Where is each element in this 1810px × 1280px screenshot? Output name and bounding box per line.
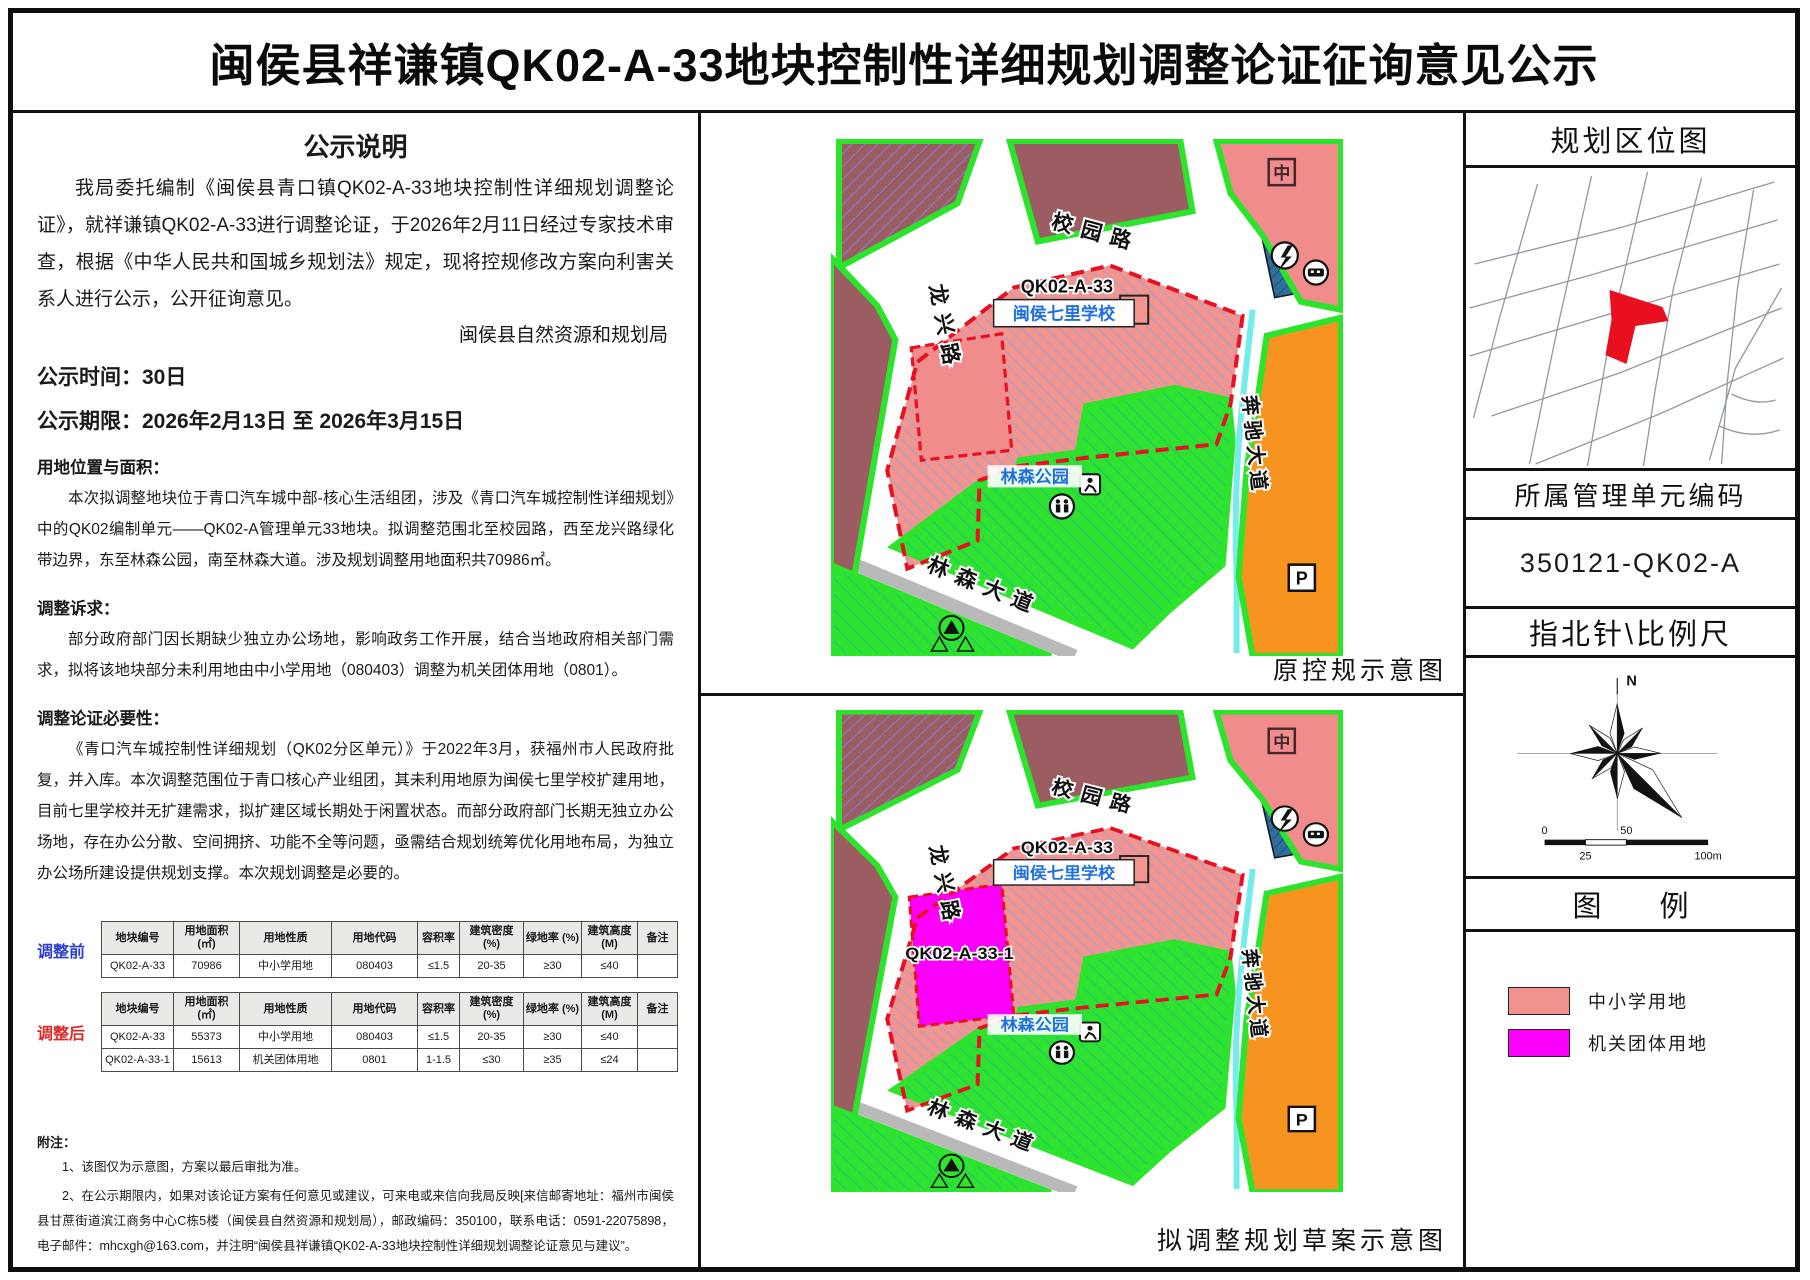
activity-icon [1080,474,1100,494]
notice-page: 闽侯县祥谦镇QK02-A-33地块控制性详细规划调整论证征询意见公示 公示说明 … [0,0,1810,1280]
col-header: 建筑密度 (%) [460,922,524,955]
col-header: 建筑密度 (%) [460,993,524,1026]
parking-icon-label: P [1296,1110,1308,1129]
toilet-icon [1050,494,1074,518]
section-body: 《青口汽车城控制性详细规划（QK02分区单元）》于2022年3月，获福州市人民政… [37,734,674,889]
parking-icon-label: P [1296,569,1308,589]
table-before-row: 调整前 地块编号 用地面积 (㎡) 用地性质 用地代码 容积率 建筑密度 (%)… [37,921,674,978]
park-name-label: 林森公园 [1001,1015,1069,1034]
cell: 中小学用地 [240,955,332,978]
footnotes: 附注： 1、该图仅为示意图，方案以最后审批为准。 2、在公示期限内，如果对该论证… [37,1132,674,1267]
scale-tick-25: 25 [1579,851,1591,863]
col-header: 地块编号 [102,922,174,955]
cell: 15613 [174,1049,240,1072]
cell: ≥30 [524,955,582,978]
col-header: 建筑高度 (M) [582,922,638,955]
legend-item-school: 中小学用地 [1508,987,1795,1015]
cell: ≤40 [582,1026,638,1049]
footnote-3: 3、如要求听证，应在公示期限内书面向我局提出申请。 [37,1263,674,1267]
table-header-row: 地块编号 用地面积 (㎡) 用地性质 用地代码 容积率 建筑密度 (%) 绿地率… [102,922,678,955]
cell: ≤1.5 [418,955,460,978]
col-header: 绿地率 (%) [524,922,582,955]
cell: 机关团体用地 [240,1049,332,1072]
activity-icon [1080,1023,1100,1042]
table-before: 地块编号 用地面积 (㎡) 用地性质 用地代码 容积率 建筑密度 (%) 绿地率… [101,921,678,978]
government-land-swatch [1508,1029,1570,1057]
col-header: 地块编号 [102,993,174,1026]
col-header: 用地性质 [240,993,332,1026]
compass-cell: N [1466,658,1795,879]
cell: ≤1.5 [418,1026,460,1049]
col-header: 用地性质 [240,922,332,955]
page-title: 闽侯县祥谦镇QK02-A-33地块控制性详细规划调整论证征询意见公示 [209,29,1598,94]
col-header: 用地代码 [332,993,418,1026]
table-after: 地块编号 用地面积 (㎡) 用地性质 用地代码 容积率 建筑密度 (%) 绿地率… [101,992,678,1072]
cell: 080403 [332,955,418,978]
section-adjust-demand: 调整诉求： 部分政府部门因长期缺少独立办公场地，影响政务工作开展，结合当地政府相… [37,595,674,686]
map-panels: 中 P [701,113,1466,1267]
col-header: 用地代码 [332,922,418,955]
cell: 55373 [174,1026,240,1049]
cell [638,1049,678,1072]
scale-bar: 0 50 25 100m [1541,825,1721,862]
cell: 70986 [174,955,240,978]
col-header: 建筑高度 (M) [582,993,638,1026]
table-row: QK02-A-33 55373 中小学用地 080403 ≤1.5 20-35 … [102,1026,678,1049]
section-necessity: 调整论证必要性： 《青口汽车城控制性详细规划（QK02分区单元）》于2022年3… [37,705,674,889]
legend-label: 机关团体用地 [1588,1030,1708,1056]
notice-paragraph: 我局委托编制《闽侯县青口镇QK02-A-33地块控制性详细规划调整论证》，就祥谦… [37,170,674,318]
cell: 20-35 [460,955,524,978]
bus-icon [1308,831,1324,838]
proposed-plan-map: 中 P [831,710,1343,1192]
section-title: 调整论证必要性： [37,705,674,729]
publicity-period: 公示期限：2026年2月13日 至 2026年3月15日 [37,405,674,435]
scale-tick-100: 100m [1694,851,1721,863]
legend-title: 图 例 [1466,879,1795,932]
table-after-row: 调整后 地块编号 用地面积 (㎡) 用地性质 用地代码 容积率 建筑密度 (%)… [37,992,674,1072]
original-plan-panel: 中 P [701,113,1463,696]
cell: ≤24 [582,1049,638,1072]
legend-label: 中小学用地 [1588,988,1688,1014]
col-header: 用地面积 (㎡) [174,922,240,955]
issuing-authority: 闽侯县自然资源和规划局 [37,320,674,347]
table-after-label: 调整后 [37,1020,101,1044]
legend-item-government: 机关团体用地 [1508,1029,1795,1057]
location-map [1466,168,1795,468]
notice-text-panel: 公示说明 我局委托编制《闽侯县青口镇QK02-A-33地块控制性详细规划调整论证… [13,113,701,1267]
footnote-1: 1、该图仅为示意图，方案以最后审批为准。 [37,1155,674,1180]
cell: QK02-A-33 [102,955,174,978]
parcel-code-label: QK02-A-33 [1021,277,1113,297]
cell: QK02-A-33 [102,1026,174,1049]
bus-icon [1308,269,1324,277]
section-title: 调整诉求： [37,595,674,619]
toilet-icon [1050,1041,1074,1063]
cell: 中小学用地 [240,1026,332,1049]
table-before-label: 调整前 [37,938,101,962]
cell: ≤30 [460,1049,524,1072]
table-row: QK02-A-33 70986 中小学用地 080403 ≤1.5 20-35 … [102,955,678,978]
sidebar: 规划区位图 [1466,113,1795,1267]
page-frame: 闽侯县祥谦镇QK02-A-33地块控制性详细规划调整论证征询意见公示 公示说明 … [8,8,1800,1272]
cell: 080403 [332,1026,418,1049]
col-header: 备注 [638,993,678,1026]
cell: ≤40 [582,955,638,978]
location-map-title: 规划区位图 [1466,113,1795,168]
compass-scale-title: 指北针\比例尺 [1466,609,1795,658]
school-land-swatch [1508,987,1570,1015]
middle-school-icon-label: 中 [1273,163,1290,183]
cell: 1-1.5 [418,1049,460,1072]
original-plan-caption: 原控规示意图 [1273,651,1447,687]
cell [638,1026,678,1049]
park-name-label: 林森公园 [1001,466,1069,486]
cell: 20-35 [460,1026,524,1049]
main-area: 公示说明 我局委托编制《闽侯县青口镇QK02-A-33地块控制性详细规划调整论证… [13,113,1795,1267]
proposed-plan-panel: 中 P [701,696,1463,1267]
table-row: QK02-A-33-1 15613 机关团体用地 0801 1-1.5 ≤30 … [102,1049,678,1072]
col-header: 用地面积 (㎡) [174,993,240,1026]
cell: QK02-A-33-1 [102,1049,174,1072]
section-body: 本次拟调整地块位于青口汽车城中部-核心生活组团，涉及《青口汽车城控制性详细规划》… [37,483,674,576]
footnote-2: 2、在公示期限内，如果对该论证方案有任何意见或建议，可来电或来信向我局反映[来信… [37,1184,674,1259]
proposed-plan-caption: 拟调整规划草案示意图 [1157,1221,1447,1257]
publicity-duration: 公示时间：30日 [37,361,674,391]
col-header: 备注 [638,922,678,955]
compass-rose: N [1517,673,1717,830]
table-header-row: 地块编号 用地面积 (㎡) 用地性质 用地代码 容积率 建筑密度 (%) 绿地率… [102,993,678,1026]
original-plan-map: 中 P [831,139,1343,656]
parcel-code-label: QK02-A-33 [1021,838,1114,857]
cell: ≥30 [524,1026,582,1049]
section-location-area: 用地位置与面积： 本次拟调整地块位于青口汽车城中部-核心生活组团，涉及《青口汽车… [37,454,674,576]
school-name-label: 闽侯七里学校 [1013,304,1116,324]
control-index-tables: 调整前 地块编号 用地面积 (㎡) 用地性质 用地代码 容积率 建筑密度 (%)… [37,921,674,1072]
school-name-label: 闽侯七里学校 [1013,863,1116,882]
title-band: 闽侯县祥谦镇QK02-A-33地块控制性详细规划调整论证征询意见公示 [13,13,1795,113]
location-map-cell [1466,168,1795,471]
cell: 0801 [332,1049,418,1072]
cell: ≥35 [524,1049,582,1072]
unit-code-value: 350121-QK02-A [1466,520,1795,609]
col-header: 容积率 [418,922,460,955]
section-body: 部分政府部门因长期缺少独立办公场地，影响政务工作开展，结合当地政府相关部门需求，… [37,624,674,686]
compass-and-scale: N [1481,658,1781,876]
legend-cell: 中小学用地 机关团体用地 [1466,932,1795,1267]
cell [638,955,678,978]
section-title: 用地位置与面积： [37,454,674,478]
middle-school-icon-label: 中 [1273,732,1290,751]
unit-code-title: 所属管理单元编码 [1466,471,1795,520]
scale-tick-0: 0 [1541,825,1547,837]
new-parcel-code-label: QK02-A-33-1 [905,944,1014,963]
north-label: N [1626,673,1636,689]
footnotes-title: 附注： [37,1132,674,1151]
scale-tick-50: 50 [1620,825,1632,837]
col-header: 容积率 [418,993,460,1026]
site-marker [1606,290,1669,364]
col-header: 绿地率 (%) [524,993,582,1026]
notice-heading: 公示说明 [37,127,674,164]
